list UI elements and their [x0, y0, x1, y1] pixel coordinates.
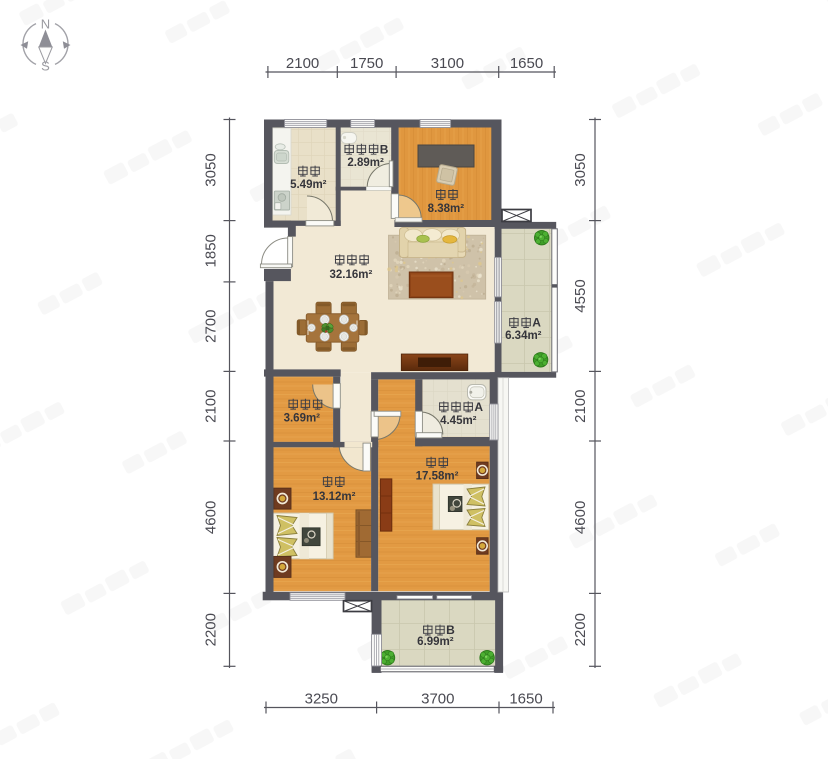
svg-text:A: A	[474, 400, 483, 414]
svg-text:2100: 2100	[286, 55, 319, 72]
svg-text:2100: 2100	[572, 390, 589, 423]
svg-text:2200: 2200	[572, 613, 589, 646]
svg-text:1650: 1650	[510, 55, 543, 72]
svg-text:1850: 1850	[203, 234, 220, 267]
svg-text:3250: 3250	[305, 691, 338, 708]
svg-text:3050: 3050	[572, 153, 589, 186]
svg-text:1750: 1750	[350, 55, 383, 72]
svg-text:13.12m²: 13.12m²	[313, 491, 356, 503]
svg-text:3100: 3100	[431, 55, 464, 72]
svg-text:2200: 2200	[203, 613, 220, 646]
svg-text:4600: 4600	[572, 501, 589, 534]
svg-text:4600: 4600	[203, 501, 220, 534]
svg-text:1650: 1650	[509, 691, 542, 708]
svg-text:3050: 3050	[203, 153, 220, 186]
svg-text:4.45m²: 4.45m²	[440, 415, 477, 427]
svg-text:2.89m²: 2.89m²	[347, 157, 384, 169]
svg-text:4550: 4550	[572, 279, 589, 312]
svg-text:6.34m²: 6.34m²	[505, 330, 542, 342]
svg-text:32.16m²: 32.16m²	[329, 269, 372, 281]
svg-text:2700: 2700	[203, 310, 220, 343]
svg-text:B: B	[380, 142, 389, 156]
svg-text:8.38m²: 8.38m²	[428, 203, 465, 215]
svg-text:A: A	[532, 316, 541, 330]
svg-text:2100: 2100	[203, 390, 220, 423]
svg-text:S: S	[41, 59, 50, 74]
svg-text:17.58m²: 17.58m²	[416, 471, 459, 483]
svg-text:3.69m²: 3.69m²	[284, 412, 321, 424]
svg-text:5.49m²: 5.49m²	[290, 179, 327, 191]
svg-text:3700: 3700	[421, 691, 454, 708]
svg-text:6.99m²: 6.99m²	[417, 636, 454, 648]
svg-text:N: N	[41, 17, 50, 32]
